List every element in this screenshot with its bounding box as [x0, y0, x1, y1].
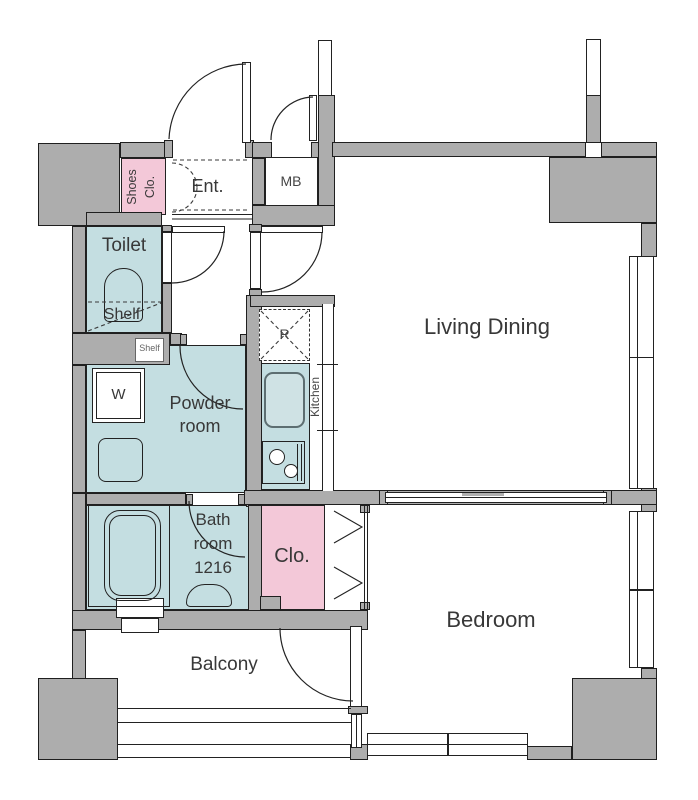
entrance-label: Ent. — [170, 175, 245, 198]
refrigerator-label: R — [259, 326, 310, 344]
kitchen-label: Kitchen — [308, 367, 324, 427]
closet-label: Clo. — [253, 544, 331, 569]
bedroom-label: Bedroom — [391, 606, 591, 634]
toilet-door-arc — [172, 231, 224, 283]
meter-box-door-arc — [271, 97, 313, 140]
shelf-box-label: Shelf — [135, 343, 164, 354]
floor-plan: Ent. MB Shoes Clo. Toilet Shelf Shelf W … — [0, 0, 698, 800]
hall-door-arc — [262, 232, 322, 292]
balcony-label: Balcony — [144, 653, 304, 677]
powder-room-label: Powder room — [148, 392, 252, 437]
living-dining-label: Living Dining — [377, 313, 597, 341]
closet-folding-door — [334, 511, 362, 543]
toilet-shelf-label: Shelf — [84, 305, 160, 325]
washer-label: W — [92, 386, 145, 405]
entrance-door-arc — [169, 64, 246, 139]
toilet-label: Toilet — [85, 234, 163, 258]
shoes-closet-label: Shoes Clo. — [123, 166, 163, 208]
closet-folding-door — [334, 567, 362, 599]
bathroom-label: Bath room 1216 — [179, 508, 247, 579]
meter-box-label: MB — [267, 173, 315, 191]
